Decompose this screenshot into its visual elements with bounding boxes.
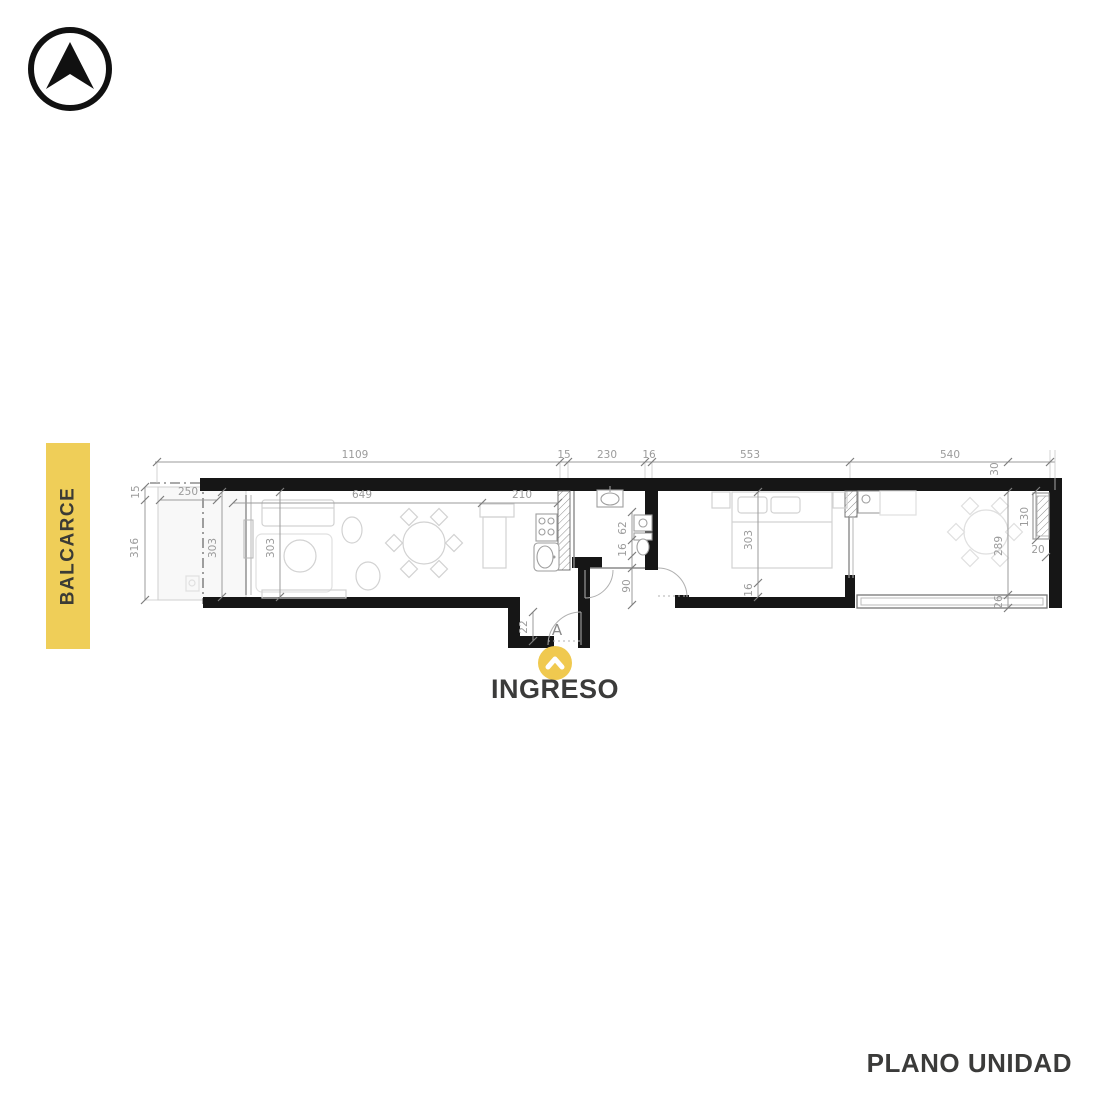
dim-label: 303 [265, 538, 277, 558]
chevron-up-icon [543, 651, 567, 675]
dim-label: 250 [178, 486, 198, 498]
dim-label: 26 [993, 595, 1005, 609]
nightstand [712, 492, 730, 508]
dim-label: 316 [129, 538, 141, 558]
dim-label: 649 [352, 489, 372, 501]
page: BALCARCE [0, 0, 1100, 1100]
dim-label: 15 [557, 449, 570, 461]
bedroom-furniture [712, 492, 847, 568]
kitchen-counter [480, 504, 514, 517]
dim-label: 15 [130, 485, 142, 498]
dim-label: 303 [207, 538, 219, 558]
dim-label: 22 [518, 620, 530, 633]
dim-label: 553 [740, 449, 760, 461]
dim-label: 289 [993, 536, 1005, 556]
dim-label: 20 [1031, 544, 1044, 556]
dim-label: 210 [512, 489, 532, 501]
bedroom-door-swing [658, 568, 687, 597]
dim-label: 16 [642, 449, 656, 461]
dim-label: 16 [617, 543, 629, 557]
dim-label: 30 [989, 462, 1001, 475]
dim-label: 303 [743, 530, 755, 550]
living-furniture [256, 500, 559, 598]
entrance-label: INGRESO [465, 674, 645, 705]
page-title: PLANO UNIDAD [867, 1048, 1072, 1079]
dim-label: 16 [743, 583, 755, 597]
stove [536, 514, 557, 541]
floor-plan: 1109 15 230 16 553 540 30 15 316 250 649… [0, 0, 1100, 1100]
terrace-furniture [858, 491, 1049, 566]
dim-label: 90 [621, 579, 633, 592]
dim-label: 130 [1019, 507, 1031, 527]
dim-label: 1109 [342, 449, 369, 461]
entry-door-label: A [552, 621, 563, 639]
doors [548, 568, 687, 645]
dim-label: 62 [617, 521, 629, 534]
dim-label: 540 [940, 449, 960, 461]
dim-label: 230 [597, 449, 617, 461]
dining-table [403, 522, 445, 564]
